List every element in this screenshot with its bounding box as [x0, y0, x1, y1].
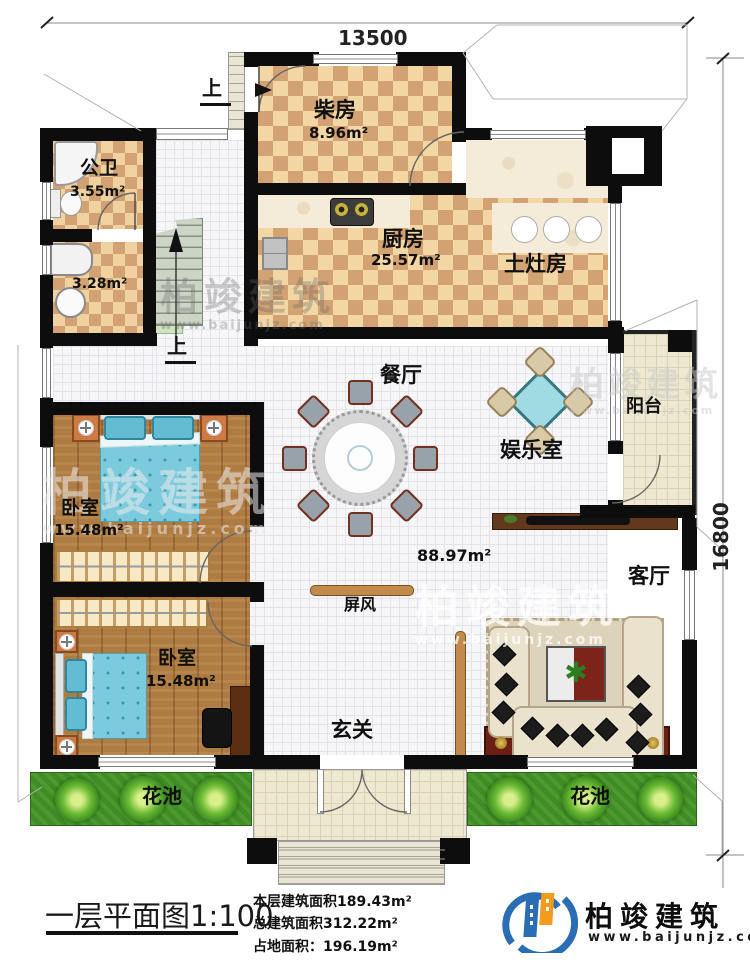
wall: [682, 518, 697, 570]
dining-table-center: [347, 445, 373, 471]
room-label-entertainment: 娱乐室: [500, 440, 563, 461]
lamp-icon: [206, 420, 222, 436]
console-plant-icon: [504, 515, 517, 523]
bed: [100, 440, 200, 522]
dimension-top: 13500: [338, 26, 408, 50]
dining-chair: [282, 446, 307, 471]
kitchen-sink: [262, 237, 288, 270]
wall: [45, 333, 157, 346]
burner-icon: [335, 203, 348, 216]
brand-logo-icon: [500, 885, 578, 953]
wall: [244, 52, 319, 66]
wall: [40, 582, 264, 597]
plant-icon: [638, 777, 683, 822]
window: [527, 757, 634, 767]
dining-chair: [413, 446, 438, 471]
room-area-bedroom1: 15.48m²: [54, 523, 124, 538]
wall: [250, 645, 264, 755]
room-area-laundry: 3.28m²: [72, 277, 127, 291]
wall: [632, 755, 697, 769]
window: [42, 245, 51, 275]
window: [42, 348, 51, 398]
wall: [608, 335, 624, 353]
floor-plan-canvas: ✱: [0, 0, 750, 968]
room-area-firewood: 8.96m²: [309, 126, 368, 141]
brand-logo: 柏竣建筑 www.baijunjz.com: [500, 885, 740, 955]
balcony-floor: [623, 334, 692, 513]
tv-icon: [202, 708, 232, 748]
total-area-line: 总建筑面积312.22m²: [253, 913, 412, 935]
window: [313, 54, 398, 64]
plan-title: 一层平面图1:100: [45, 893, 274, 935]
wall: [45, 229, 92, 242]
screen-label: 屏风: [344, 597, 376, 613]
wall: [244, 112, 258, 346]
wall: [682, 640, 697, 755]
room-area-bedroom2: 15.48m²: [146, 674, 216, 689]
nightstand: [200, 414, 228, 442]
window: [42, 182, 51, 220]
flower-bed-label-right: 花池: [570, 786, 610, 806]
wall: [404, 755, 528, 769]
dining-chair: [348, 512, 373, 537]
brand-url: www.baijunjz.com: [588, 930, 750, 945]
room-area-bathroom: 3.55m²: [70, 185, 125, 199]
bed: [88, 653, 147, 739]
room-label-bedroom1: 卧室: [61, 499, 99, 518]
porch-column: [247, 838, 277, 864]
plant-icon: [55, 778, 99, 822]
bed-headboard: [55, 653, 64, 739]
washing-machine: [50, 243, 93, 276]
title-underline: [46, 931, 238, 935]
wardrobe: [55, 598, 208, 628]
entry-door-leaf: [317, 769, 324, 814]
window: [610, 353, 621, 441]
table-plant-icon: ✱: [561, 658, 591, 688]
lamp-icon: [59, 739, 75, 755]
wall: [258, 183, 466, 195]
flower-bed-label-left: 花池: [142, 786, 182, 806]
porch-steps: [278, 841, 445, 885]
nightstand: [72, 414, 100, 442]
side-door-sill: [156, 128, 228, 140]
plant-icon: [487, 777, 532, 822]
room-label-bathroom: 公卫: [80, 159, 118, 178]
entry-door-leaf: [404, 769, 411, 814]
stove-pot-icon: [543, 216, 570, 243]
room-label-kitchen: 厨房: [382, 229, 424, 250]
room-label-dining: 餐厅: [380, 365, 422, 386]
lamp-icon: [78, 420, 94, 436]
balcony-post: [668, 330, 692, 352]
floor-area-line: 本层建筑面积189.43m²: [253, 891, 412, 913]
hall-area: 88.97m²: [417, 548, 491, 564]
window: [490, 130, 586, 139]
stove-pot-icon: [575, 216, 602, 243]
window: [610, 203, 621, 321]
corridor-floor: [53, 346, 156, 402]
wall: [214, 755, 320, 769]
window: [684, 570, 695, 640]
entry-hall-label: 玄关: [331, 720, 373, 741]
wall: [40, 543, 53, 755]
side-table-knob: [495, 737, 507, 749]
land-area-line: 占地面积：196.19m²: [253, 936, 412, 958]
wall: [250, 327, 624, 339]
up-stairs-label: 上: [165, 330, 196, 364]
wall: [45, 402, 263, 415]
chimney-flue: [612, 138, 644, 174]
lamp-icon: [59, 634, 75, 650]
room-label-balcony: 阳台: [626, 398, 662, 416]
wall: [452, 128, 492, 140]
bed-pillow: [65, 697, 87, 731]
porch-column: [440, 838, 470, 864]
wall: [143, 128, 156, 346]
bed-pillow: [152, 416, 194, 440]
wall: [45, 128, 145, 141]
dimension-right: 16800: [709, 492, 733, 582]
room-label-living: 客厅: [628, 566, 670, 587]
up-exterior-label: 上: [200, 72, 231, 106]
wall: [250, 402, 264, 527]
room-label-firewood: 柴房: [314, 100, 356, 121]
bed-pillow: [104, 416, 146, 440]
window: [42, 447, 51, 543]
burner-icon: [355, 203, 368, 216]
balcony-railing: [692, 330, 697, 515]
stairs: [150, 218, 203, 326]
nightstand: [55, 630, 78, 653]
wall: [396, 52, 454, 66]
area-statistics: 本层建筑面积189.43m² 总建筑面积312.22m² 占地面积：196.19…: [253, 891, 412, 958]
stove-pot-icon: [511, 216, 538, 243]
window: [98, 757, 216, 767]
brand-name: 柏竣建筑: [585, 895, 725, 935]
dining-chair: [348, 380, 373, 405]
room-area-kitchen: 25.57m²: [371, 253, 441, 268]
bed-pillow: [65, 659, 87, 693]
wall: [40, 755, 100, 769]
room-label-bedroom2: 卧室: [158, 649, 196, 668]
wardrobe: [55, 550, 210, 583]
porch-floor: [253, 769, 467, 841]
screen-divider-vertical: [455, 631, 466, 766]
wall: [40, 128, 53, 182]
wall: [608, 441, 623, 454]
plant-icon: [193, 777, 238, 822]
room-label-stove-room: 土灶房: [504, 254, 567, 275]
wall: [580, 505, 695, 518]
